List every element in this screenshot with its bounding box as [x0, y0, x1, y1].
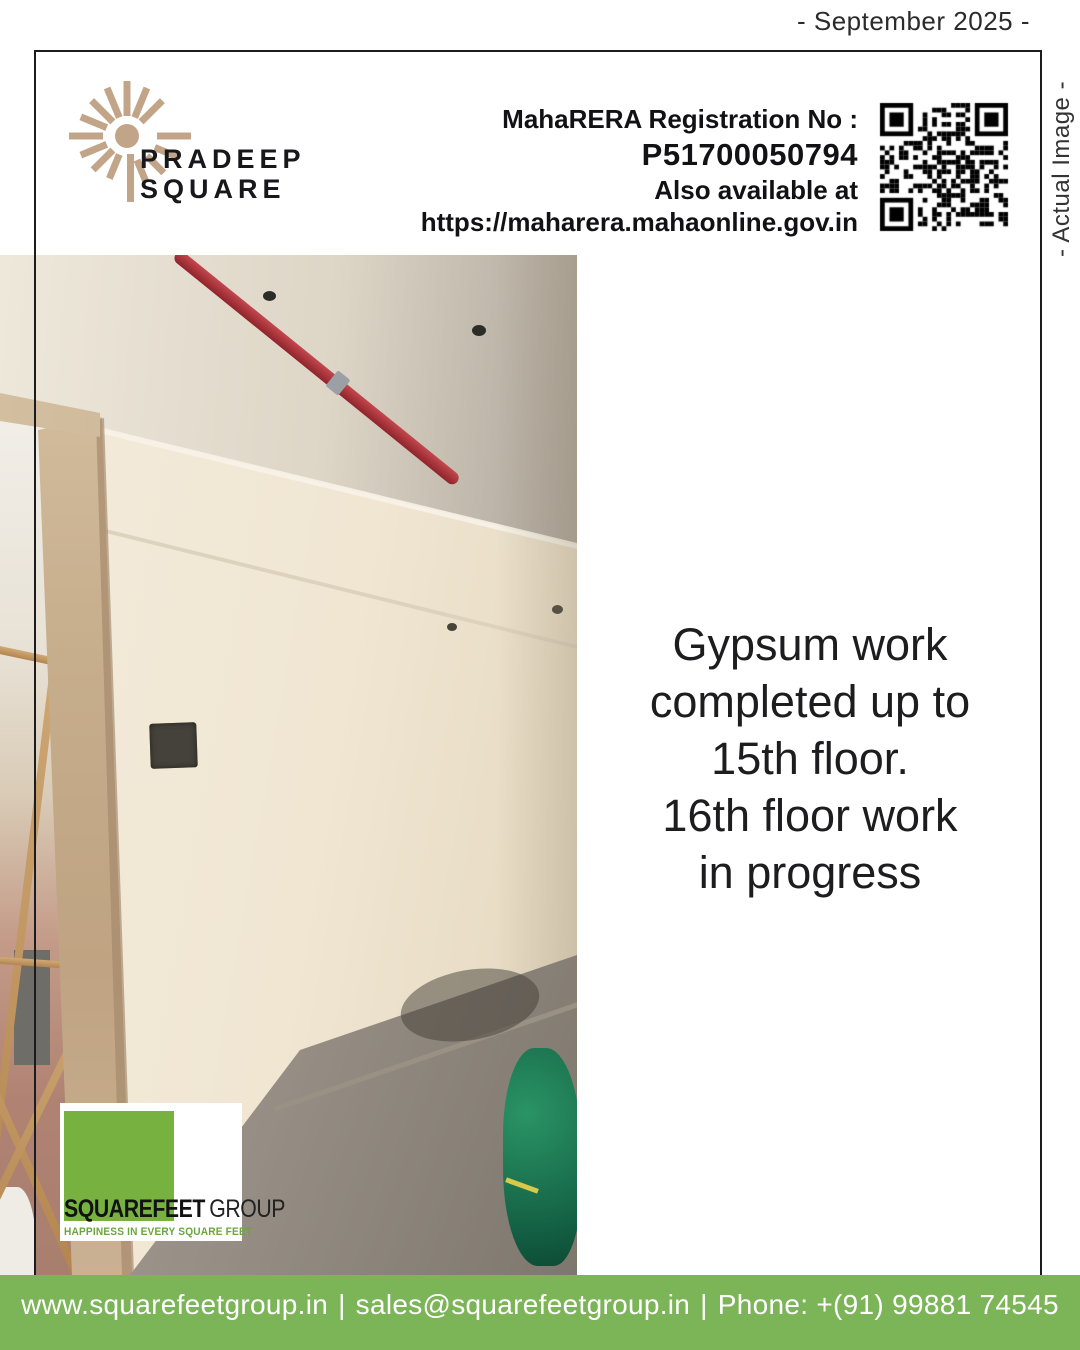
maharera-qr-code — [875, 98, 1013, 236]
footer-separator: | — [700, 1289, 708, 1320]
rera-number: P51700050794 — [421, 136, 858, 174]
footer-contact-text: www.squarefeetgroup.in|sales@squarefeetg… — [21, 1289, 1059, 1321]
actual-image-label: - Actual Image - — [1048, 52, 1076, 257]
squarefeet-wordmark: SQUAREFEETGROUP — [64, 1195, 285, 1224]
footer-phone: Phone: +(91) 99881 74545 — [718, 1289, 1059, 1320]
rera-url: https://maharera.mahaonline.gov.in — [421, 206, 858, 239]
progress-headline: Gypsum work completed up to 15th floor. … — [580, 616, 1040, 901]
footer-separator: | — [338, 1289, 346, 1320]
rera-block: MahaRERA Registration No : P51700050794 … — [421, 102, 858, 239]
footer-website: www.squarefeetgroup.in — [21, 1289, 328, 1320]
squarefeet-tagline: HAPPINESS IN EVERY SQUARE FEET — [64, 1226, 252, 1238]
brand-name: PRADEEP SQUARE — [140, 144, 306, 204]
photo-white-pot — [0, 1187, 36, 1275]
footer-email: sales@squarefeetgroup.in — [356, 1289, 691, 1320]
rera-also-line: Also available at — [421, 174, 858, 206]
squarefeet-wordmark-regular: GROUP — [209, 1195, 285, 1223]
issue-date-label: - September 2025 - — [797, 6, 1030, 37]
rera-label: MahaRERA Registration No : — [421, 102, 858, 136]
photo-green-tarp — [503, 1048, 577, 1266]
poster: - September 2025 - — [0, 0, 1080, 1350]
footer-contact-bar: www.squarefeetgroup.in|sales@squarefeetg… — [0, 1275, 1080, 1350]
squarefeet-group-logo: SQUAREFEETGROUP HAPPINESS IN EVERY SQUAR… — [60, 1103, 242, 1241]
squarefeet-wordmark-bold: SQUAREFEET — [64, 1195, 205, 1223]
qr-code-pattern — [875, 98, 1013, 236]
